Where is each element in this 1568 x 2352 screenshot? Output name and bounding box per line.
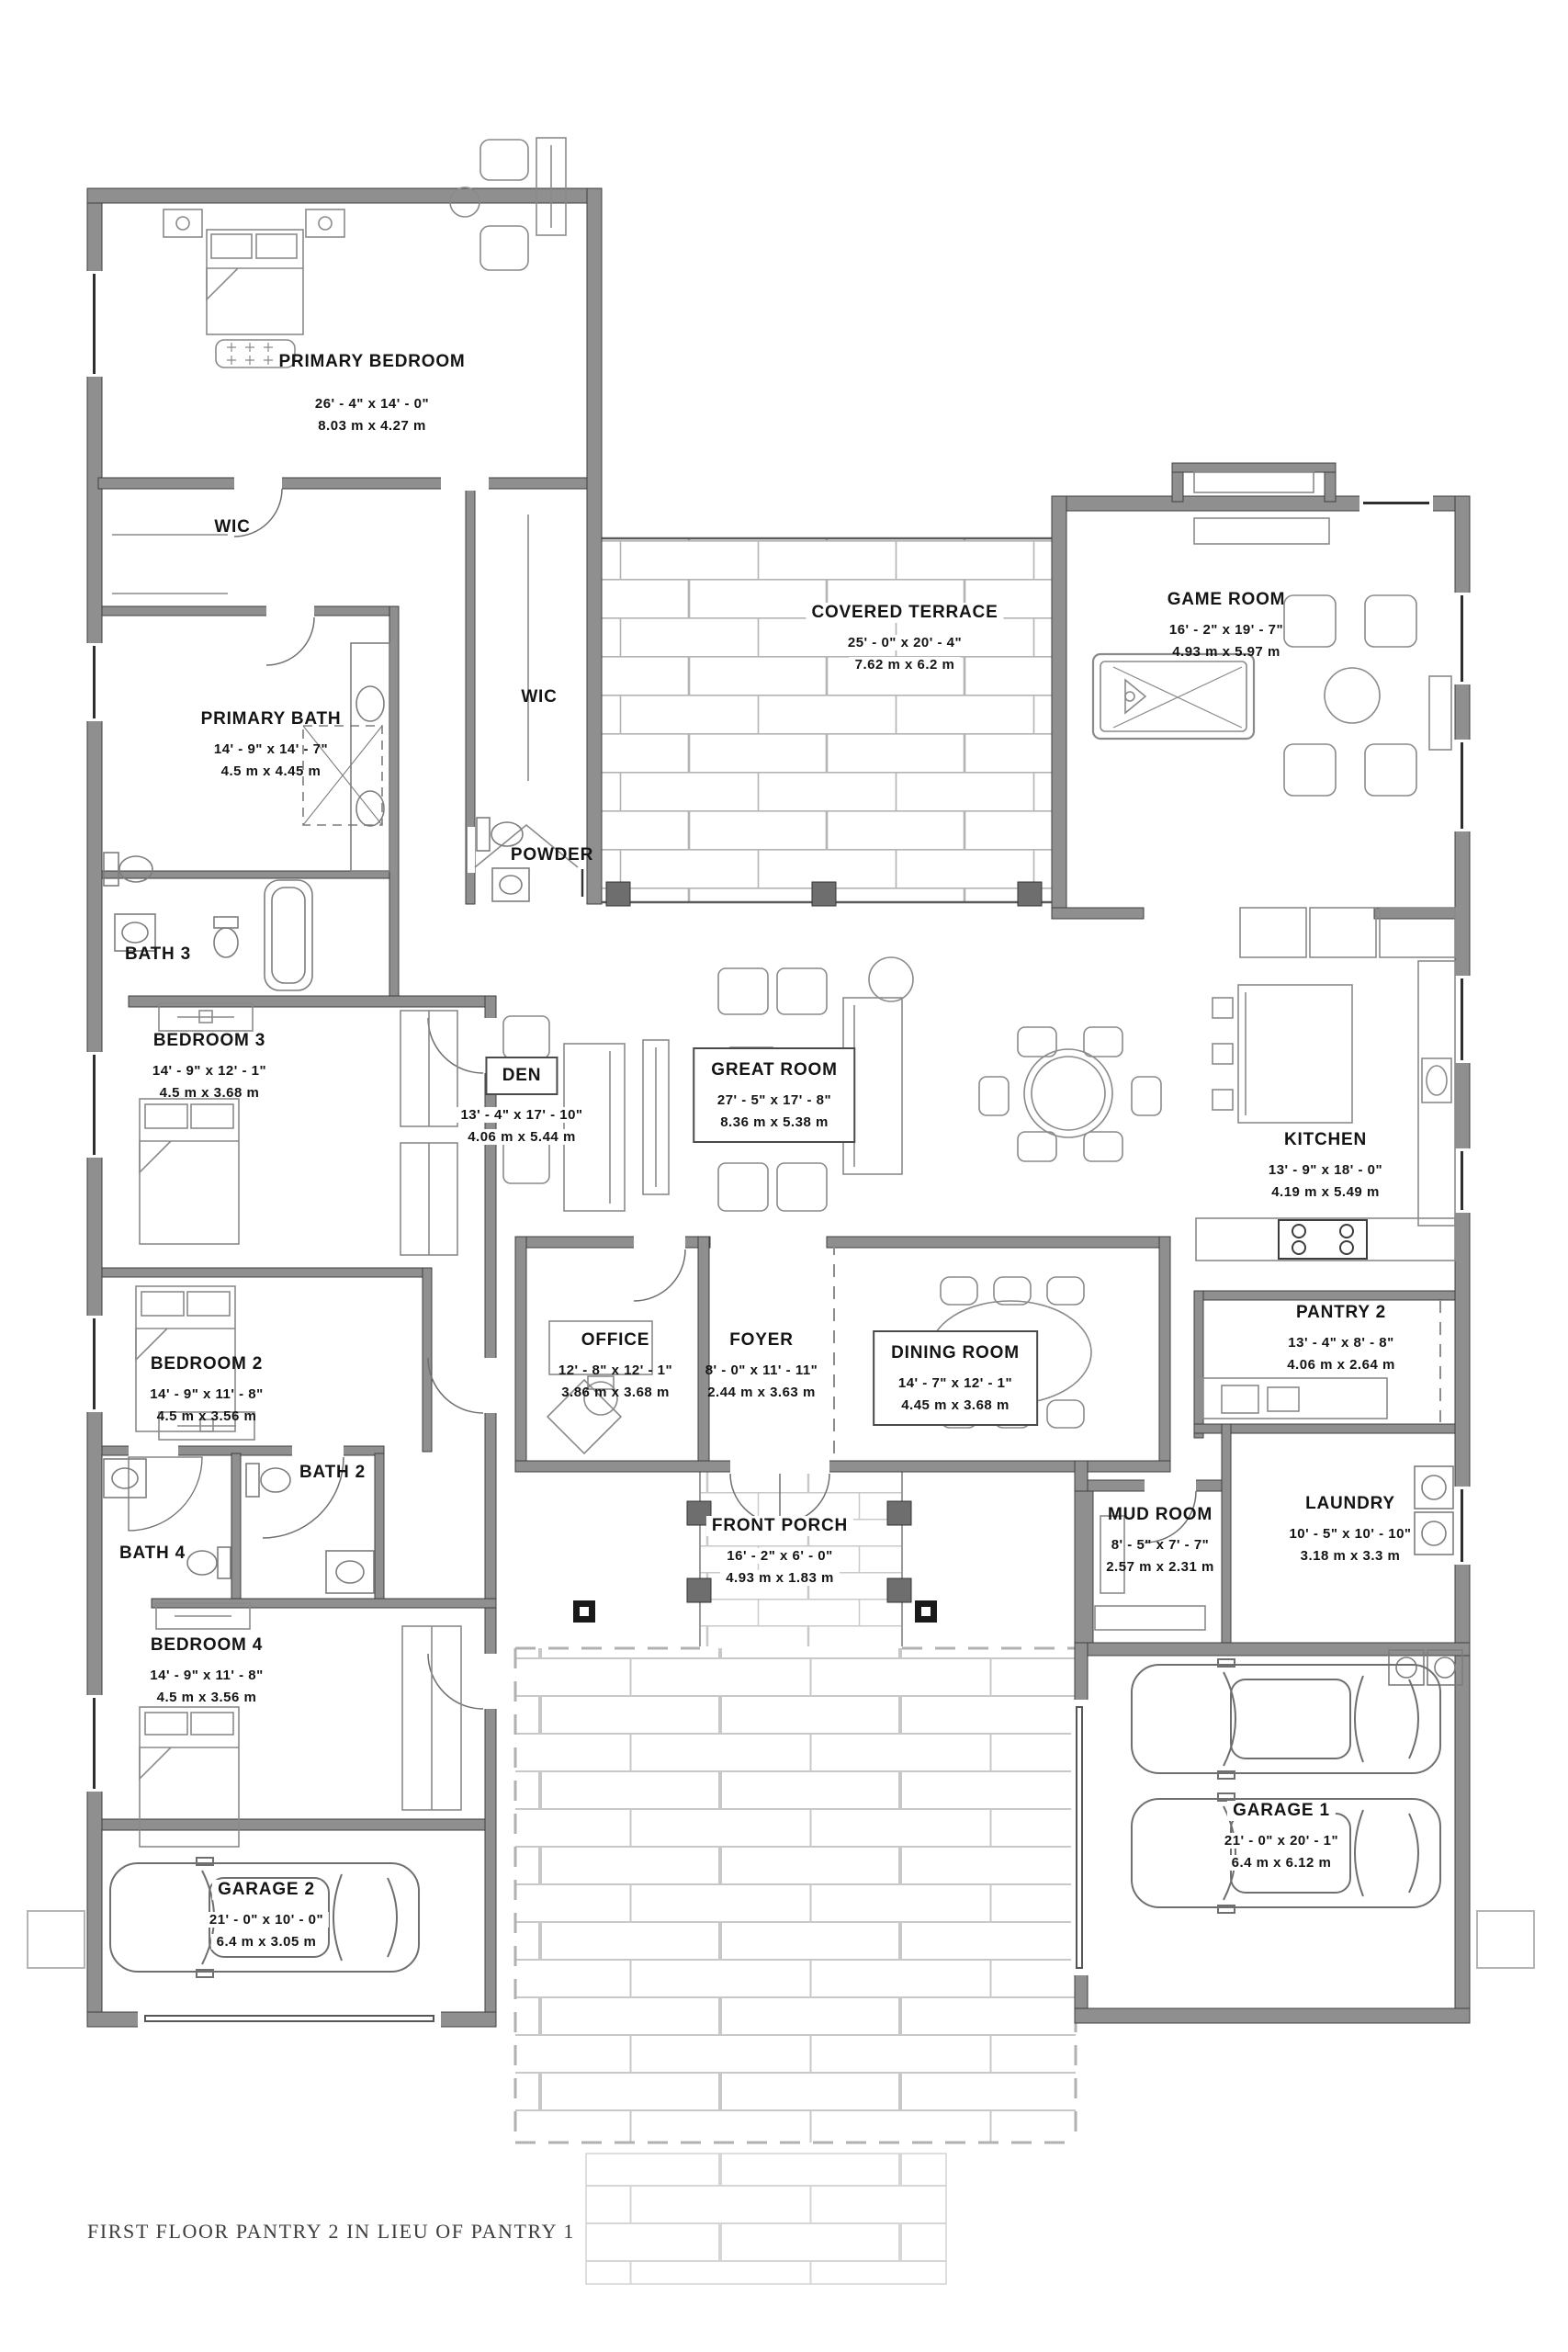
- room-label-powder: POWDER: [511, 845, 593, 865]
- room-label-bedroom-2: BEDROOM 2 14' - 9" x 11' - 8" 4.5 m x 3.…: [150, 1354, 263, 1424]
- room-label-primary-bedroom: PRIMARY BEDROOM 26' - 4" x 14' - 0" 8.03…: [278, 352, 465, 434]
- walkway-apron-paving: [586, 2154, 946, 2284]
- room-label-garage-2: GARAGE 2 21' - 0" x 10' - 0" 6.4 m x 3.0…: [204, 1880, 329, 1950]
- room-label-bedroom-4: BEDROOM 4 14' - 9" x 11' - 8" 4.5 m x 3.…: [144, 1635, 268, 1705]
- room-label-mud-room: MUD ROOM 8' - 5" x 7' - 7" 2.57 m x 2.31…: [1106, 1505, 1214, 1575]
- room-label-game-room: GAME ROOM 16' - 2" x 19' - 7" 4.93 m x 5…: [1168, 590, 1286, 660]
- room-label-front-porch: FRONT PORCH 16' - 2" x 6' - 0" 4.93 m x …: [706, 1516, 853, 1586]
- room-label-pantry-2: PANTRY 2 13' - 4" x 8' - 8" 4.06 m x 2.6…: [1287, 1303, 1395, 1373]
- range-cooktop: [1279, 1220, 1367, 1259]
- room-label-bedroom-3: BEDROOM 3 14' - 9" x 12' - 1" 4.5 m x 3.…: [152, 1031, 266, 1101]
- covered-terrace-paving: [602, 538, 1052, 902]
- room-label-wic-2: WIC: [521, 687, 557, 707]
- room-label-den: DEN 13' - 4" x 17' - 10" 4.06 m x 5.44 m: [455, 1057, 588, 1145]
- room-label-garage-1: GARAGE 1 21' - 0" x 20' - 1" 6.4 m x 6.1…: [1219, 1801, 1344, 1871]
- driveway-paving: [515, 1648, 1076, 2143]
- room-label-wic-1: WIC: [214, 517, 250, 537]
- floor-plan-page: PRIMARY BEDROOM 26' - 4" x 14' - 0" 8.03…: [0, 0, 1568, 2352]
- room-label-bath-4: BATH 4: [119, 1543, 186, 1564]
- room-label-dining-room: DINING ROOM 14' - 7" x 12' - 1" 4.45 m x…: [873, 1330, 1038, 1426]
- room-label-bath-3: BATH 3: [125, 944, 191, 965]
- room-label-kitchen: KITCHEN 13' - 9" x 18' - 0" 4.19 m x 5.4…: [1269, 1130, 1382, 1200]
- room-label-laundry: LAUNDRY 10' - 5" x 10' - 10" 3.18 m x 3.…: [1289, 1494, 1411, 1564]
- room-label-office: OFFICE 12' - 8" x 12' - 1" 3.86 m x 3.68…: [558, 1330, 672, 1400]
- room-label-covered-terrace: COVERED TERRACE 25' - 0" x 20' - 4" 7.62…: [806, 603, 1003, 673]
- plan-revision-note: FIRST FLOOR PANTRY 2 IN LIEU OF PANTRY 1: [87, 2220, 575, 2244]
- room-label-bath-2: BATH 2: [299, 1463, 366, 1483]
- room-label-great-room: GREAT ROOM 27' - 5" x 17' - 8" 8.36 m x …: [693, 1047, 855, 1143]
- room-label-foyer: FOYER 8' - 0" x 11' - 11" 2.44 m x 3.63 …: [705, 1330, 818, 1400]
- garage1-car-1: [1132, 1659, 1440, 1779]
- room-label-primary-bath: PRIMARY BATH 14' - 9" x 14' - 7" 4.5 m x…: [201, 709, 342, 779]
